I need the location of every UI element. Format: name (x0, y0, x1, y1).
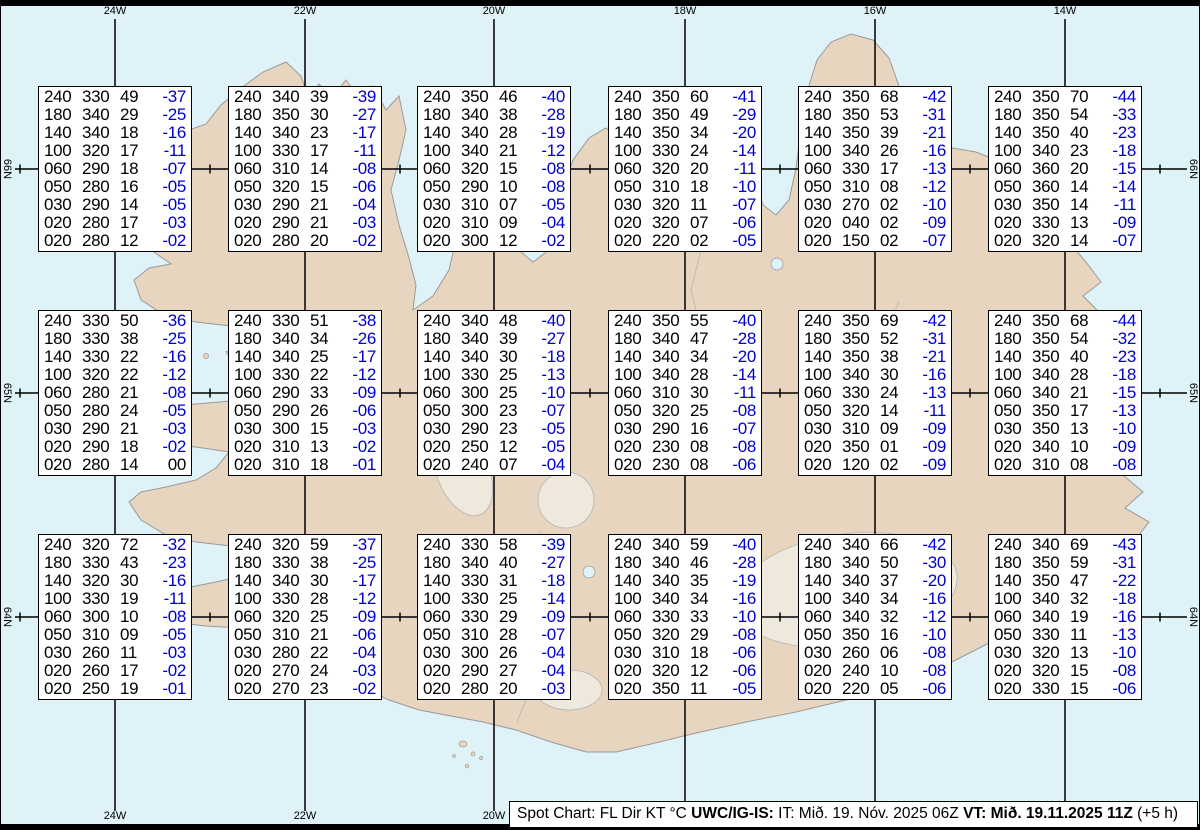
spot-row: 05028024-05 (44, 402, 186, 420)
value-kt: 59 (310, 536, 333, 554)
value-temp: -16 (910, 590, 946, 608)
value-fl: 140 (804, 124, 835, 142)
spot-row: 02033013-09 (994, 214, 1136, 232)
value-dir: 230 (652, 438, 683, 456)
value-fl: 140 (994, 572, 1025, 590)
value-dir: 290 (272, 196, 303, 214)
value-fl: 020 (614, 456, 645, 474)
value-temp: -04 (529, 662, 565, 680)
value-fl: 020 (44, 214, 75, 232)
value-dir: 120 (842, 456, 873, 474)
value-fl: 020 (423, 662, 454, 680)
value-fl: 030 (423, 420, 454, 438)
value-dir: 340 (1032, 438, 1063, 456)
spot-row: 02028020-03 (423, 680, 565, 698)
spot-row: 02032015-08 (994, 662, 1136, 680)
value-fl: 100 (614, 366, 645, 384)
spot-row: 03030026-04 (423, 644, 565, 662)
value-fl: 180 (423, 106, 454, 124)
value-dir: 310 (272, 160, 303, 178)
value-fl: 060 (994, 160, 1025, 178)
value-fl: 050 (44, 402, 75, 420)
spot-row: 18035052-31 (804, 330, 946, 348)
value-dir: 290 (272, 402, 303, 420)
value-kt: 69 (1070, 536, 1093, 554)
value-fl: 140 (234, 348, 265, 366)
value-fl: 240 (234, 312, 265, 330)
value-temp: -05 (150, 626, 186, 644)
value-fl: 030 (614, 420, 645, 438)
value-dir: 340 (272, 348, 303, 366)
spot-row: 02032007-06 (614, 214, 756, 232)
value-temp: -01 (150, 680, 186, 698)
spot-row: 14033031-18 (423, 572, 565, 590)
spot-row: 02029027-04 (423, 662, 565, 680)
spot-row: 06031014-08 (234, 160, 376, 178)
spot-row: 14034035-19 (614, 572, 756, 590)
value-dir: 310 (652, 644, 683, 662)
value-dir: 320 (272, 608, 303, 626)
value-kt: 13 (1070, 214, 1093, 232)
value-dir: 290 (652, 420, 683, 438)
value-fl: 050 (994, 402, 1025, 420)
value-dir: 340 (652, 554, 683, 572)
spot-row: 02015002-07 (804, 232, 946, 250)
spot-box: 24033051-3818034034-2614034025-171003302… (228, 310, 382, 476)
value-fl: 240 (804, 88, 835, 106)
value-temp: -10 (910, 626, 946, 644)
value-dir: 340 (461, 554, 492, 572)
value-temp: -23 (150, 554, 186, 572)
value-fl: 240 (614, 312, 645, 330)
value-fl: 050 (994, 626, 1025, 644)
spot-row: 02028020-02 (234, 232, 376, 250)
value-kt: 26 (880, 142, 903, 160)
value-dir: 340 (272, 572, 303, 590)
value-temp: -11 (340, 142, 376, 160)
value-kt: 19 (120, 680, 143, 698)
value-kt: 39 (499, 330, 522, 348)
spot-box: 24035068-4218035053-3114035039-211003402… (798, 86, 952, 252)
value-temp: -14 (720, 366, 756, 384)
value-kt: 60 (690, 88, 713, 106)
value-kt: 30 (310, 572, 333, 590)
value-kt: 19 (1070, 608, 1093, 626)
value-temp: -39 (529, 536, 565, 554)
value-dir: 340 (1032, 142, 1063, 160)
spot-row: 24033049-37 (44, 88, 186, 106)
value-temp: -02 (340, 232, 376, 250)
value-dir: 280 (461, 680, 492, 698)
spot-row: 03029023-05 (423, 420, 565, 438)
spot-row: 02024007-04 (423, 456, 565, 474)
value-kt: 20 (1070, 160, 1093, 178)
value-fl: 050 (423, 626, 454, 644)
spot-box: 24034069-4318035059-3114035047-221003403… (988, 534, 1142, 700)
value-temp: -08 (340, 160, 376, 178)
value-dir: 350 (842, 88, 873, 106)
spot-row: 24033058-39 (423, 536, 565, 554)
value-temp: -38 (340, 312, 376, 330)
value-temp: -09 (910, 420, 946, 438)
value-temp: -08 (910, 644, 946, 662)
value-dir: 220 (652, 232, 683, 250)
value-temp: -08 (720, 402, 756, 420)
value-temp: -03 (340, 420, 376, 438)
spot-row: 24035060-41 (614, 88, 756, 106)
value-kt: 34 (880, 590, 903, 608)
value-temp: -08 (1100, 456, 1136, 474)
value-dir: 340 (842, 554, 873, 572)
value-kt: 68 (1070, 312, 1093, 330)
spot-row: 02031018-01 (234, 456, 376, 474)
value-fl: 030 (234, 196, 265, 214)
value-kt: 21 (120, 420, 143, 438)
value-fl: 100 (44, 142, 75, 160)
value-kt: 59 (690, 536, 713, 554)
value-kt: 08 (1070, 456, 1093, 474)
spot-row: 05035016-10 (804, 626, 946, 644)
value-fl: 020 (234, 680, 265, 698)
value-fl: 240 (423, 88, 454, 106)
value-temp: -13 (910, 384, 946, 402)
value-kt: 09 (880, 420, 903, 438)
value-dir: 330 (272, 312, 303, 330)
value-kt: 28 (310, 590, 333, 608)
value-temp: -42 (910, 312, 946, 330)
spot-row: 05032014-11 (804, 402, 946, 420)
value-dir: 330 (461, 366, 492, 384)
spot-row: 24035068-44 (994, 312, 1136, 330)
value-kt: 32 (1070, 590, 1093, 608)
value-temp: -30 (910, 554, 946, 572)
value-kt: 08 (690, 438, 713, 456)
value-dir: 350 (842, 330, 873, 348)
value-dir: 350 (652, 680, 683, 698)
spot-row: 03027002-10 (804, 196, 946, 214)
value-fl: 050 (994, 178, 1025, 196)
spot-row: 24035046-40 (423, 88, 565, 106)
spot-row: 14035040-23 (994, 348, 1136, 366)
spot-row: 18034038-28 (423, 106, 565, 124)
value-kt: 38 (499, 106, 522, 124)
spot-row: 02026017-02 (44, 662, 186, 680)
value-fl: 020 (234, 232, 265, 250)
value-temp: -04 (340, 196, 376, 214)
value-temp: -17 (340, 572, 376, 590)
value-temp: -31 (910, 330, 946, 348)
spot-row: 02030012-02 (423, 232, 565, 250)
value-kt: 38 (120, 330, 143, 348)
spot-box: 24032059-3718033038-2514034030-171003302… (228, 534, 382, 700)
value-kt: 30 (880, 366, 903, 384)
status-chart-type: Spot Chart: FL Dir KT °C (517, 805, 691, 822)
value-dir: 270 (842, 196, 873, 214)
value-fl: 030 (994, 196, 1025, 214)
value-temp: -12 (340, 366, 376, 384)
value-kt: 30 (690, 384, 713, 402)
spot-row: 02035011-05 (614, 680, 756, 698)
value-dir: 330 (82, 88, 113, 106)
value-kt: 15 (1070, 662, 1093, 680)
value-kt: 18 (310, 456, 333, 474)
value-kt: 15 (310, 178, 333, 196)
value-dir: 360 (1032, 178, 1063, 196)
value-temp: -07 (529, 402, 565, 420)
value-dir: 350 (1032, 106, 1063, 124)
value-fl: 240 (234, 536, 265, 554)
value-kt: 20 (310, 232, 333, 250)
value-kt: 16 (880, 626, 903, 644)
value-temp: -02 (340, 438, 376, 456)
value-dir: 280 (82, 232, 113, 250)
value-fl: 020 (994, 214, 1025, 232)
value-fl: 060 (994, 608, 1025, 626)
value-fl: 180 (44, 330, 75, 348)
value-fl: 050 (614, 626, 645, 644)
value-dir: 340 (1032, 366, 1063, 384)
value-fl: 060 (614, 384, 645, 402)
value-temp: -09 (1100, 214, 1136, 232)
value-kt: 48 (499, 312, 522, 330)
value-dir: 330 (461, 608, 492, 626)
value-temp: -13 (1100, 626, 1136, 644)
value-temp: 00 (150, 456, 186, 474)
value-fl: 030 (804, 644, 835, 662)
value-dir: 280 (272, 644, 303, 662)
value-fl: 180 (44, 106, 75, 124)
value-temp: -10 (720, 178, 756, 196)
value-fl: 060 (234, 608, 265, 626)
value-fl: 140 (423, 572, 454, 590)
value-dir: 350 (1032, 402, 1063, 420)
value-dir: 350 (842, 124, 873, 142)
value-dir: 340 (842, 536, 873, 554)
value-dir: 280 (82, 214, 113, 232)
value-temp: -16 (720, 590, 756, 608)
value-temp: -05 (720, 232, 756, 250)
spot-box: 24035070-4418035054-3314035040-231003402… (988, 86, 1142, 252)
value-temp: -13 (910, 160, 946, 178)
value-dir: 330 (272, 366, 303, 384)
value-temp: -31 (1100, 554, 1136, 572)
value-kt: 46 (690, 554, 713, 572)
spot-row: 18034047-28 (614, 330, 756, 348)
value-dir: 350 (652, 88, 683, 106)
value-temp: -08 (529, 178, 565, 196)
value-fl: 140 (994, 348, 1025, 366)
value-kt: 24 (690, 142, 713, 160)
value-temp: -25 (340, 554, 376, 572)
value-dir: 330 (461, 536, 492, 554)
value-kt: 16 (120, 178, 143, 196)
value-kt: 33 (310, 384, 333, 402)
value-dir: 340 (1032, 384, 1063, 402)
value-dir: 350 (842, 312, 873, 330)
spot-row: 18033038-25 (44, 330, 186, 348)
value-kt: 30 (499, 348, 522, 366)
spot-row: 02032014-07 (994, 232, 1136, 250)
value-dir: 280 (82, 178, 113, 196)
spot-row: 03029021-03 (44, 420, 186, 438)
value-kt: 68 (880, 88, 903, 106)
value-temp: -06 (720, 644, 756, 662)
spot-row: 06031030-11 (614, 384, 756, 402)
value-fl: 180 (614, 554, 645, 572)
value-dir: 340 (842, 366, 873, 384)
value-dir: 320 (652, 626, 683, 644)
value-dir: 280 (272, 232, 303, 250)
value-kt: 10 (499, 178, 522, 196)
value-kt: 28 (499, 124, 522, 142)
value-kt: 26 (310, 402, 333, 420)
value-kt: 22 (310, 644, 333, 662)
value-temp: -11 (150, 142, 186, 160)
value-dir: 240 (461, 456, 492, 474)
value-dir: 340 (1032, 536, 1063, 554)
spot-row: 06030025-10 (423, 384, 565, 402)
longitude-label-top: 22W (294, 5, 317, 17)
spot-row: 18034050-30 (804, 554, 946, 572)
value-kt: 31 (499, 572, 522, 590)
spot-row: 24032072-32 (44, 536, 186, 554)
value-fl: 020 (994, 662, 1025, 680)
spot-row: 18034034-26 (234, 330, 376, 348)
value-kt: 18 (120, 160, 143, 178)
value-kt: 15 (1070, 680, 1093, 698)
value-temp: -12 (910, 608, 946, 626)
value-dir: 300 (82, 608, 113, 626)
value-temp: -42 (910, 88, 946, 106)
spot-row: 02022002-05 (614, 232, 756, 250)
spot-row: 06028021-08 (44, 384, 186, 402)
value-dir: 340 (461, 348, 492, 366)
spot-row: 10034023-18 (994, 142, 1136, 160)
value-kt: 22 (310, 366, 333, 384)
value-dir: 330 (461, 590, 492, 608)
spot-row: 05032015-06 (234, 178, 376, 196)
spot-box: 24035068-4418035054-3214035040-231003402… (988, 310, 1142, 476)
value-kt: 55 (690, 312, 713, 330)
value-dir: 340 (272, 124, 303, 142)
value-kt: 08 (690, 456, 713, 474)
value-dir: 310 (461, 214, 492, 232)
value-kt: 40 (499, 554, 522, 572)
value-kt: 15 (499, 160, 522, 178)
value-kt: 29 (499, 608, 522, 626)
value-temp: -21 (910, 348, 946, 366)
value-temp: -23 (1100, 348, 1136, 366)
value-dir: 300 (461, 232, 492, 250)
spot-row: 18035053-31 (804, 106, 946, 124)
value-temp: -09 (340, 384, 376, 402)
value-temp: -07 (720, 420, 756, 438)
spot-row: 03028022-04 (234, 644, 376, 662)
value-dir: 340 (461, 330, 492, 348)
spot-row: 06032015-08 (423, 160, 565, 178)
spot-row: 02028012-02 (44, 232, 186, 250)
value-temp: -04 (529, 214, 565, 232)
value-temp: -14 (529, 590, 565, 608)
value-dir: 340 (652, 590, 683, 608)
value-kt: 20 (690, 160, 713, 178)
value-temp: -42 (910, 536, 946, 554)
value-fl: 050 (234, 402, 265, 420)
value-fl: 100 (614, 590, 645, 608)
value-fl: 050 (423, 178, 454, 196)
value-fl: 030 (44, 644, 75, 662)
spot-row: 02012002-09 (804, 456, 946, 474)
value-fl: 060 (423, 160, 454, 178)
value-dir: 250 (82, 680, 113, 698)
value-dir: 330 (272, 142, 303, 160)
value-temp: -07 (910, 232, 946, 250)
value-dir: 320 (652, 214, 683, 232)
status-source: UWC/IG-IS: (691, 805, 774, 822)
value-temp: -29 (720, 106, 756, 124)
spot-row: 05031028-07 (423, 626, 565, 644)
spot-row: 02033015-06 (994, 680, 1136, 698)
value-dir: 350 (652, 124, 683, 142)
value-fl: 240 (44, 88, 75, 106)
value-dir: 320 (461, 160, 492, 178)
spot-row: 24034048-40 (423, 312, 565, 330)
spot-row: 06034032-12 (804, 608, 946, 626)
value-kt: 09 (120, 626, 143, 644)
value-fl: 050 (234, 626, 265, 644)
spot-row: 18033038-25 (234, 554, 376, 572)
value-dir: 340 (652, 348, 683, 366)
value-dir: 350 (1032, 124, 1063, 142)
value-kt: 21 (1070, 384, 1093, 402)
spot-row: 03031007-05 (423, 196, 565, 214)
value-kt: 16 (690, 420, 713, 438)
value-kt: 02 (880, 456, 903, 474)
value-dir: 340 (461, 106, 492, 124)
value-dir: 290 (461, 178, 492, 196)
value-kt: 14 (310, 160, 333, 178)
longitude-label-top: 24W (104, 5, 127, 17)
value-dir: 350 (842, 626, 873, 644)
value-kt: 11 (120, 644, 143, 662)
value-fl: 020 (994, 456, 1025, 474)
spot-row: 14034023-17 (234, 124, 376, 142)
spot-row: 02027023-02 (234, 680, 376, 698)
value-fl: 020 (44, 680, 75, 698)
value-kt: 23 (310, 124, 333, 142)
value-temp: -07 (529, 626, 565, 644)
value-temp: -04 (529, 456, 565, 474)
value-dir: 320 (652, 160, 683, 178)
value-kt: 25 (499, 366, 522, 384)
value-fl: 020 (804, 438, 835, 456)
spot-box: 24035055-4018034047-2814034034-201003402… (608, 310, 762, 476)
value-temp: -40 (529, 312, 565, 330)
value-kt: 25 (499, 590, 522, 608)
value-kt: 18 (690, 178, 713, 196)
value-kt: 02 (690, 232, 713, 250)
spot-row: 18035054-33 (994, 106, 1136, 124)
spot-row: 24035055-40 (614, 312, 756, 330)
value-temp: -36 (150, 312, 186, 330)
spot-row: 10032022-12 (44, 366, 186, 384)
value-fl: 100 (234, 366, 265, 384)
value-fl: 100 (804, 366, 835, 384)
spot-row: 06033029-09 (423, 608, 565, 626)
spot-row: 14032030-16 (44, 572, 186, 590)
value-fl: 180 (994, 554, 1025, 572)
value-dir: 290 (82, 196, 113, 214)
